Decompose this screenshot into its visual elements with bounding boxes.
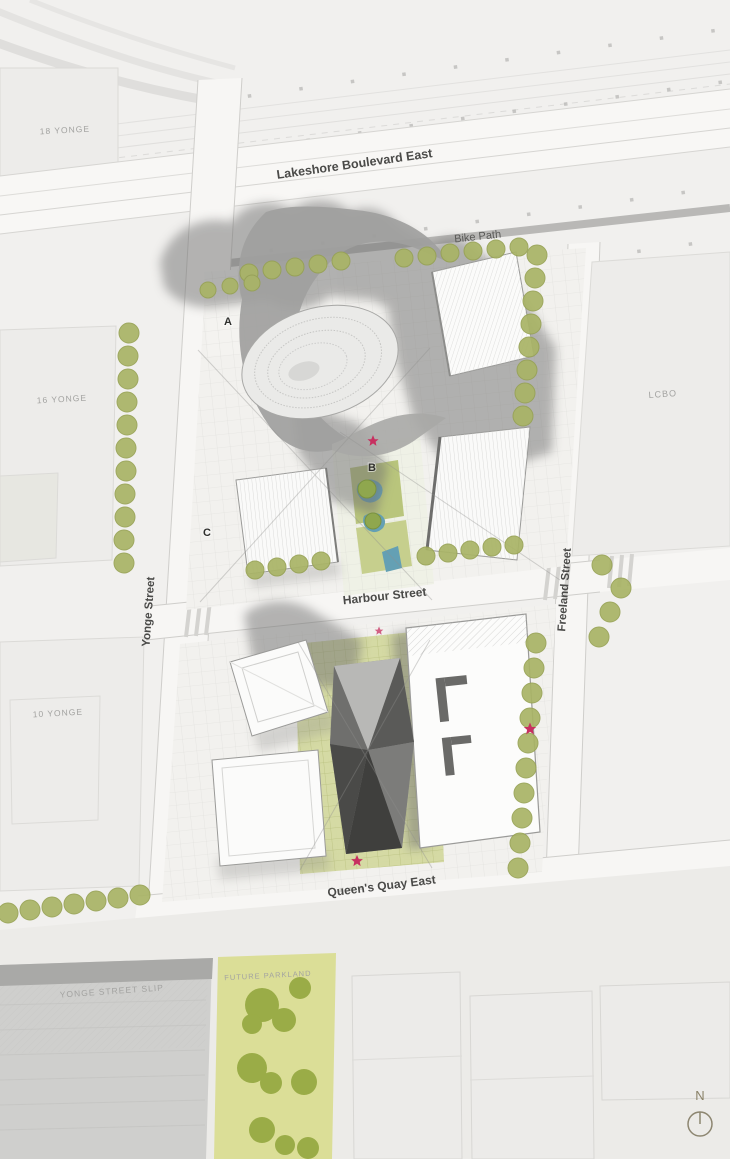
tower-faceted [330, 658, 414, 854]
site-plan-page: Lakeshore Boulevard East Bike Path Harbo… [0, 0, 730, 1159]
lcbo-block [572, 252, 730, 556]
block-10-yonge [0, 637, 144, 891]
site-plan-map: Lakeshore Boulevard East Bike Path Harbo… [0, 0, 730, 1159]
marker-b: B [368, 462, 376, 474]
tower-southwest-square [212, 750, 326, 866]
tower-northeast [432, 252, 534, 376]
lcbo-label: LCBO [648, 388, 677, 400]
future-parkland [214, 953, 336, 1159]
marker-a: A [224, 316, 232, 328]
marker-c: C [203, 527, 211, 539]
north-label: N [695, 1088, 704, 1103]
